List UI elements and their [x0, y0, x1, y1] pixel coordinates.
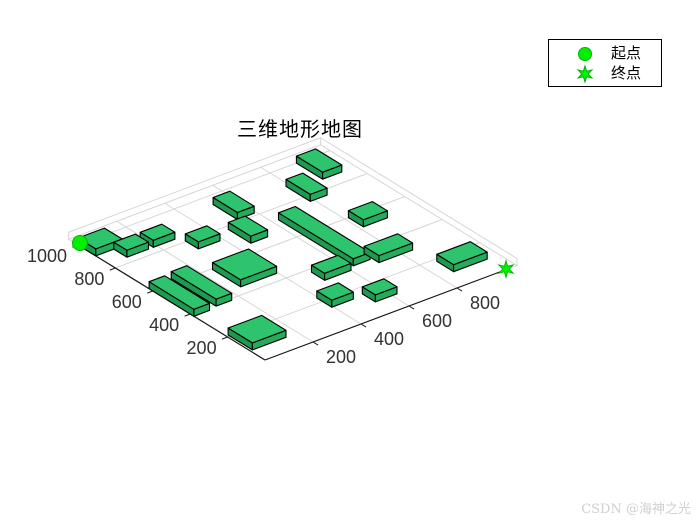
y-tick-label: 400 — [149, 315, 179, 335]
legend-box: 起点 终点 — [548, 39, 662, 87]
y-axis-tick — [222, 337, 228, 339]
x-axis-tick — [313, 342, 318, 345]
y-axis-tick — [110, 268, 116, 270]
legend-label-end: 终点 — [611, 64, 641, 82]
x-axis-tick — [457, 288, 462, 291]
end-hexagram-icon — [575, 64, 595, 84]
x-tick-label: 400 — [374, 329, 404, 349]
y-tick-label: 1000 — [27, 246, 67, 266]
figure: 2004006008001000200400600800 三维地形地图 起点 终… — [0, 0, 700, 525]
legend-item-end: 终点 — [549, 63, 661, 83]
x-tick-label: 200 — [326, 347, 356, 367]
watermark-text: CSDN @海神之光 — [581, 498, 691, 517]
x-tick-label: 800 — [470, 293, 500, 313]
y-tick-label: 200 — [187, 338, 217, 358]
y-tick-label: 800 — [74, 269, 104, 289]
y-axis-tick — [147, 291, 153, 293]
start-marker — [73, 236, 88, 251]
y-axis-tick — [185, 314, 191, 316]
circle-marker-shape — [579, 48, 592, 61]
start-circle-icon — [575, 44, 595, 64]
y-tick-label: 600 — [112, 292, 142, 312]
x-axis-tick — [409, 306, 414, 309]
legend-label-start: 起点 — [611, 44, 641, 62]
plot-title: 三维地形地图 — [150, 113, 450, 142]
hexagram-marker-shape — [578, 66, 592, 82]
x-tick-label: 600 — [422, 311, 452, 331]
x-axis-tick — [361, 324, 366, 327]
end-marker — [499, 261, 514, 278]
legend-item-start: 起点 — [549, 43, 661, 63]
